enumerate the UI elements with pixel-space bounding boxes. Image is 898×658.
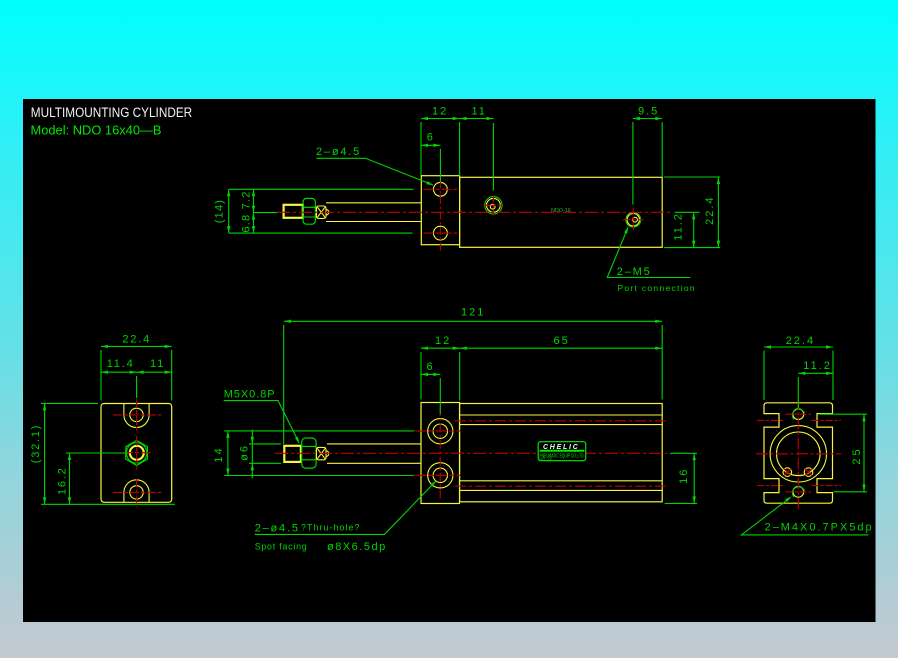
svg-text:11.2: 11.2 [672, 212, 684, 241]
svg-text:11: 11 [150, 358, 165, 370]
svg-text:25: 25 [851, 446, 863, 464]
svg-text:11: 11 [472, 106, 487, 118]
svg-text:6: 6 [427, 361, 435, 373]
svg-text:NDO-16: NDO-16 [551, 208, 571, 214]
svg-text:6: 6 [427, 131, 435, 143]
svg-text:Spot facing: Spot facing [255, 541, 308, 551]
svg-text:16: 16 [678, 468, 690, 484]
svg-text:Port connection: Port connection [617, 283, 696, 293]
svg-text:12: 12 [435, 335, 451, 347]
svg-text:NO.16: NO.16 [540, 457, 552, 461]
svg-text:2–M4X0.7PX5dp: 2–M4X0.7PX5dp [765, 521, 874, 533]
svg-text:2–ø4.5: 2–ø4.5 [316, 146, 361, 158]
svg-text:ø8X6.5dp: ø8X6.5dp [327, 541, 387, 553]
svg-text:Model: NDO 16x40—B: Model: NDO 16x40—B [31, 124, 162, 138]
svg-text:22.4: 22.4 [122, 333, 151, 345]
svg-text:16.2: 16.2 [57, 466, 69, 495]
svg-text:ø6: ø6 [239, 444, 251, 461]
svg-text:(32.1): (32.1) [30, 424, 42, 464]
svg-text:12: 12 [432, 106, 448, 118]
svg-text:2–M5: 2–M5 [617, 266, 652, 278]
svg-text:9.5: 9.5 [638, 106, 659, 118]
svg-text:22.4: 22.4 [704, 195, 716, 224]
svg-text:11.2: 11.2 [803, 360, 832, 372]
svg-text:?Thru-hole?: ?Thru-hole? [301, 523, 361, 533]
svg-text:11.4: 11.4 [107, 358, 135, 370]
svg-text:MULTIMOUNTING CYLINDER: MULTIMOUNTING CYLINDER [31, 105, 193, 120]
svg-text:22.4: 22.4 [786, 335, 815, 347]
svg-text:121: 121 [461, 306, 485, 318]
svg-text:(14): (14) [214, 199, 226, 223]
svg-text:6.8 7.2: 6.8 7.2 [241, 190, 253, 232]
svg-text:14: 14 [213, 446, 225, 462]
svg-text:M5X0.8P: M5X0.8P [224, 388, 276, 400]
svg-text:2–ø4.5: 2–ø4.5 [255, 522, 300, 534]
svg-text:65: 65 [554, 335, 570, 347]
